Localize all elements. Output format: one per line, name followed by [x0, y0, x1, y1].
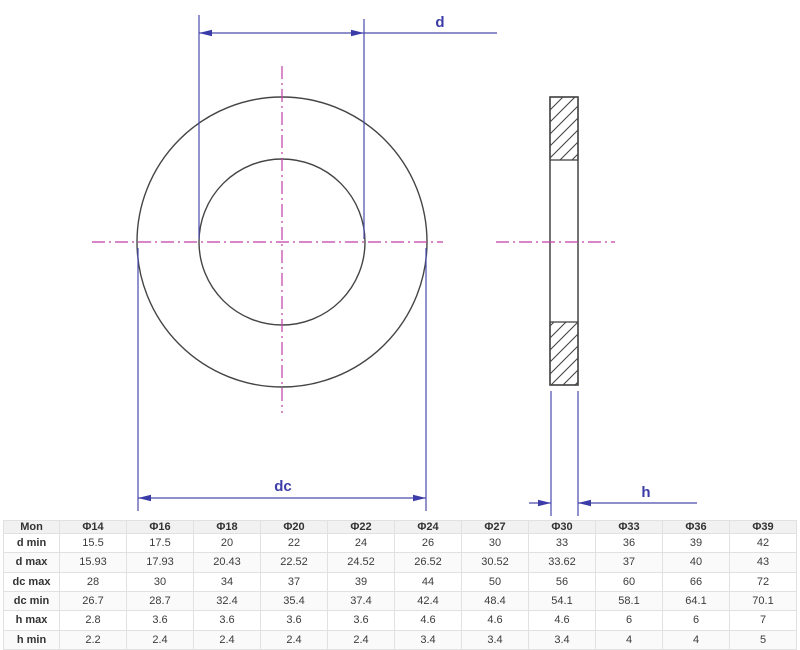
table-cell: 2.2: [60, 630, 127, 649]
spec-table-head-row: MonΦ14Φ16Φ18Φ20Φ22Φ24Φ27Φ30Φ33Φ36Φ39: [4, 521, 797, 534]
table-cell: 37: [596, 553, 663, 572]
table-cell: 42: [730, 534, 797, 553]
table-row: dc min26.728.732.435.437.442.448.454.158…: [4, 591, 797, 610]
table-cell: 26.7: [60, 591, 127, 610]
table-cell: 33.62: [529, 553, 596, 572]
hatch-top: [550, 97, 578, 160]
table-row: d max15.9317.9320.4322.5224.5226.5230.52…: [4, 553, 797, 572]
table-cell: 60: [596, 572, 663, 591]
table-cell: 4: [596, 630, 663, 649]
table-cell: 56: [529, 572, 596, 591]
table-cell: 3.6: [194, 611, 261, 630]
table-cell: 15.93: [60, 553, 127, 572]
table-cell: 24.52: [328, 553, 395, 572]
dimension-d: d: [199, 14, 497, 239]
table-cell: 64.1: [663, 591, 730, 610]
table-cell: 2.4: [261, 630, 328, 649]
table-row: dc max2830343739445056606672: [4, 572, 797, 591]
table-cell: 5: [730, 630, 797, 649]
table-cell: 35.4: [261, 591, 328, 610]
table-cell: 28: [60, 572, 127, 591]
dimension-h-label: h: [641, 484, 650, 501]
table-cell: 70.1: [730, 591, 797, 610]
table-col-header: Φ16: [127, 521, 194, 534]
table-cell: 4.6: [462, 611, 529, 630]
table-col-header: Φ27: [462, 521, 529, 534]
table-cell: 28.7: [127, 591, 194, 610]
technical-drawing: d dc h: [0, 0, 800, 520]
table-cell: 72: [730, 572, 797, 591]
spec-table: MonΦ14Φ16Φ18Φ20Φ22Φ24Φ27Φ30Φ33Φ36Φ39 d m…: [3, 520, 797, 650]
table-cell: 2.8: [60, 611, 127, 630]
table-cell: 6: [663, 611, 730, 630]
table-row-label: h max: [4, 611, 60, 630]
table-col-header: Φ36: [663, 521, 730, 534]
table-cell: 58.1: [596, 591, 663, 610]
dimension-dc: dc: [138, 248, 426, 511]
arrowhead-left: [199, 30, 212, 37]
table-cell: 30: [462, 534, 529, 553]
table-cell: 7: [730, 611, 797, 630]
dimension-h: h: [529, 391, 697, 516]
table-cell: 50: [462, 572, 529, 591]
table-cell: 6: [596, 611, 663, 630]
table-cell: 3.6: [261, 611, 328, 630]
hatch-bottom: [550, 322, 578, 385]
table-col-header: Φ14: [60, 521, 127, 534]
table-row-label: dc min: [4, 591, 60, 610]
dimension-d-label: d: [435, 14, 444, 31]
table-cell: 43: [730, 553, 797, 572]
spec-table-wrap: MonΦ14Φ16Φ18Φ20Φ22Φ24Φ27Φ30Φ33Φ36Φ39 d m…: [0, 520, 800, 650]
arrowhead-left: [578, 500, 591, 507]
table-cell: 34: [194, 572, 261, 591]
table-cell: 37.4: [328, 591, 395, 610]
table-cell: 2.4: [328, 630, 395, 649]
table-cell: 22: [261, 534, 328, 553]
table-row-label: d min: [4, 534, 60, 553]
table-row-label: d max: [4, 553, 60, 572]
table-row: h max2.83.63.63.63.64.64.64.6667: [4, 611, 797, 630]
table-cell: 20.43: [194, 553, 261, 572]
table-col-header: Φ22: [328, 521, 395, 534]
table-cell: 32.4: [194, 591, 261, 610]
table-cell: 2.4: [127, 630, 194, 649]
table-cell: 20: [194, 534, 261, 553]
table-cell: 30.52: [462, 553, 529, 572]
table-cell: 17.93: [127, 553, 194, 572]
table-row: d min15.517.5202224263033363942: [4, 534, 797, 553]
dimension-dc-label: dc: [274, 478, 292, 495]
table-cell: 3.4: [395, 630, 462, 649]
table-row-label: h min: [4, 630, 60, 649]
table-row: h min2.22.42.42.42.43.43.43.4445: [4, 630, 797, 649]
table-col-header: Φ33: [596, 521, 663, 534]
table-cell: 42.4: [395, 591, 462, 610]
table-col-header: Φ20: [261, 521, 328, 534]
table-row-label: dc max: [4, 572, 60, 591]
spec-table-head: MonΦ14Φ16Φ18Φ20Φ22Φ24Φ27Φ30Φ33Φ36Φ39: [4, 521, 797, 534]
spec-table-body: d min15.517.5202224263033363942d max15.9…: [4, 534, 797, 650]
table-cell: 30: [127, 572, 194, 591]
table-cell: 3.4: [462, 630, 529, 649]
table-cell: 17.5: [127, 534, 194, 553]
table-cell: 3.4: [529, 630, 596, 649]
table-col-header: Φ24: [395, 521, 462, 534]
table-cell: 24: [328, 534, 395, 553]
table-cell: 4.6: [529, 611, 596, 630]
table-cell: 3.6: [127, 611, 194, 630]
table-cell: 66: [663, 572, 730, 591]
arrowhead-right: [351, 30, 364, 37]
table-cell: 54.1: [529, 591, 596, 610]
table-col-header: Φ39: [730, 521, 797, 534]
table-cell: 40: [663, 553, 730, 572]
table-cell: 39: [328, 572, 395, 591]
table-col-header: Φ30: [529, 521, 596, 534]
table-cell: 4.6: [395, 611, 462, 630]
table-cell: 15.5: [60, 534, 127, 553]
arrowhead-right: [413, 495, 426, 502]
table-cell: 2.4: [194, 630, 261, 649]
washer-drawing-svg: d dc h: [0, 0, 800, 520]
table-cell: 22.52: [261, 553, 328, 572]
table-cell: 44: [395, 572, 462, 591]
arrowhead-right: [538, 500, 551, 507]
side-view: [496, 97, 615, 385]
table-corner-header: Mon: [4, 521, 60, 534]
arrowhead-left: [138, 495, 151, 502]
table-cell: 37: [261, 572, 328, 591]
table-cell: 3.6: [328, 611, 395, 630]
table-cell: 4: [663, 630, 730, 649]
table-cell: 26.52: [395, 553, 462, 572]
table-cell: 26: [395, 534, 462, 553]
front-view: [92, 66, 443, 413]
table-cell: 33: [529, 534, 596, 553]
table-cell: 36: [596, 534, 663, 553]
table-cell: 48.4: [462, 591, 529, 610]
table-col-header: Φ18: [194, 521, 261, 534]
table-cell: 39: [663, 534, 730, 553]
